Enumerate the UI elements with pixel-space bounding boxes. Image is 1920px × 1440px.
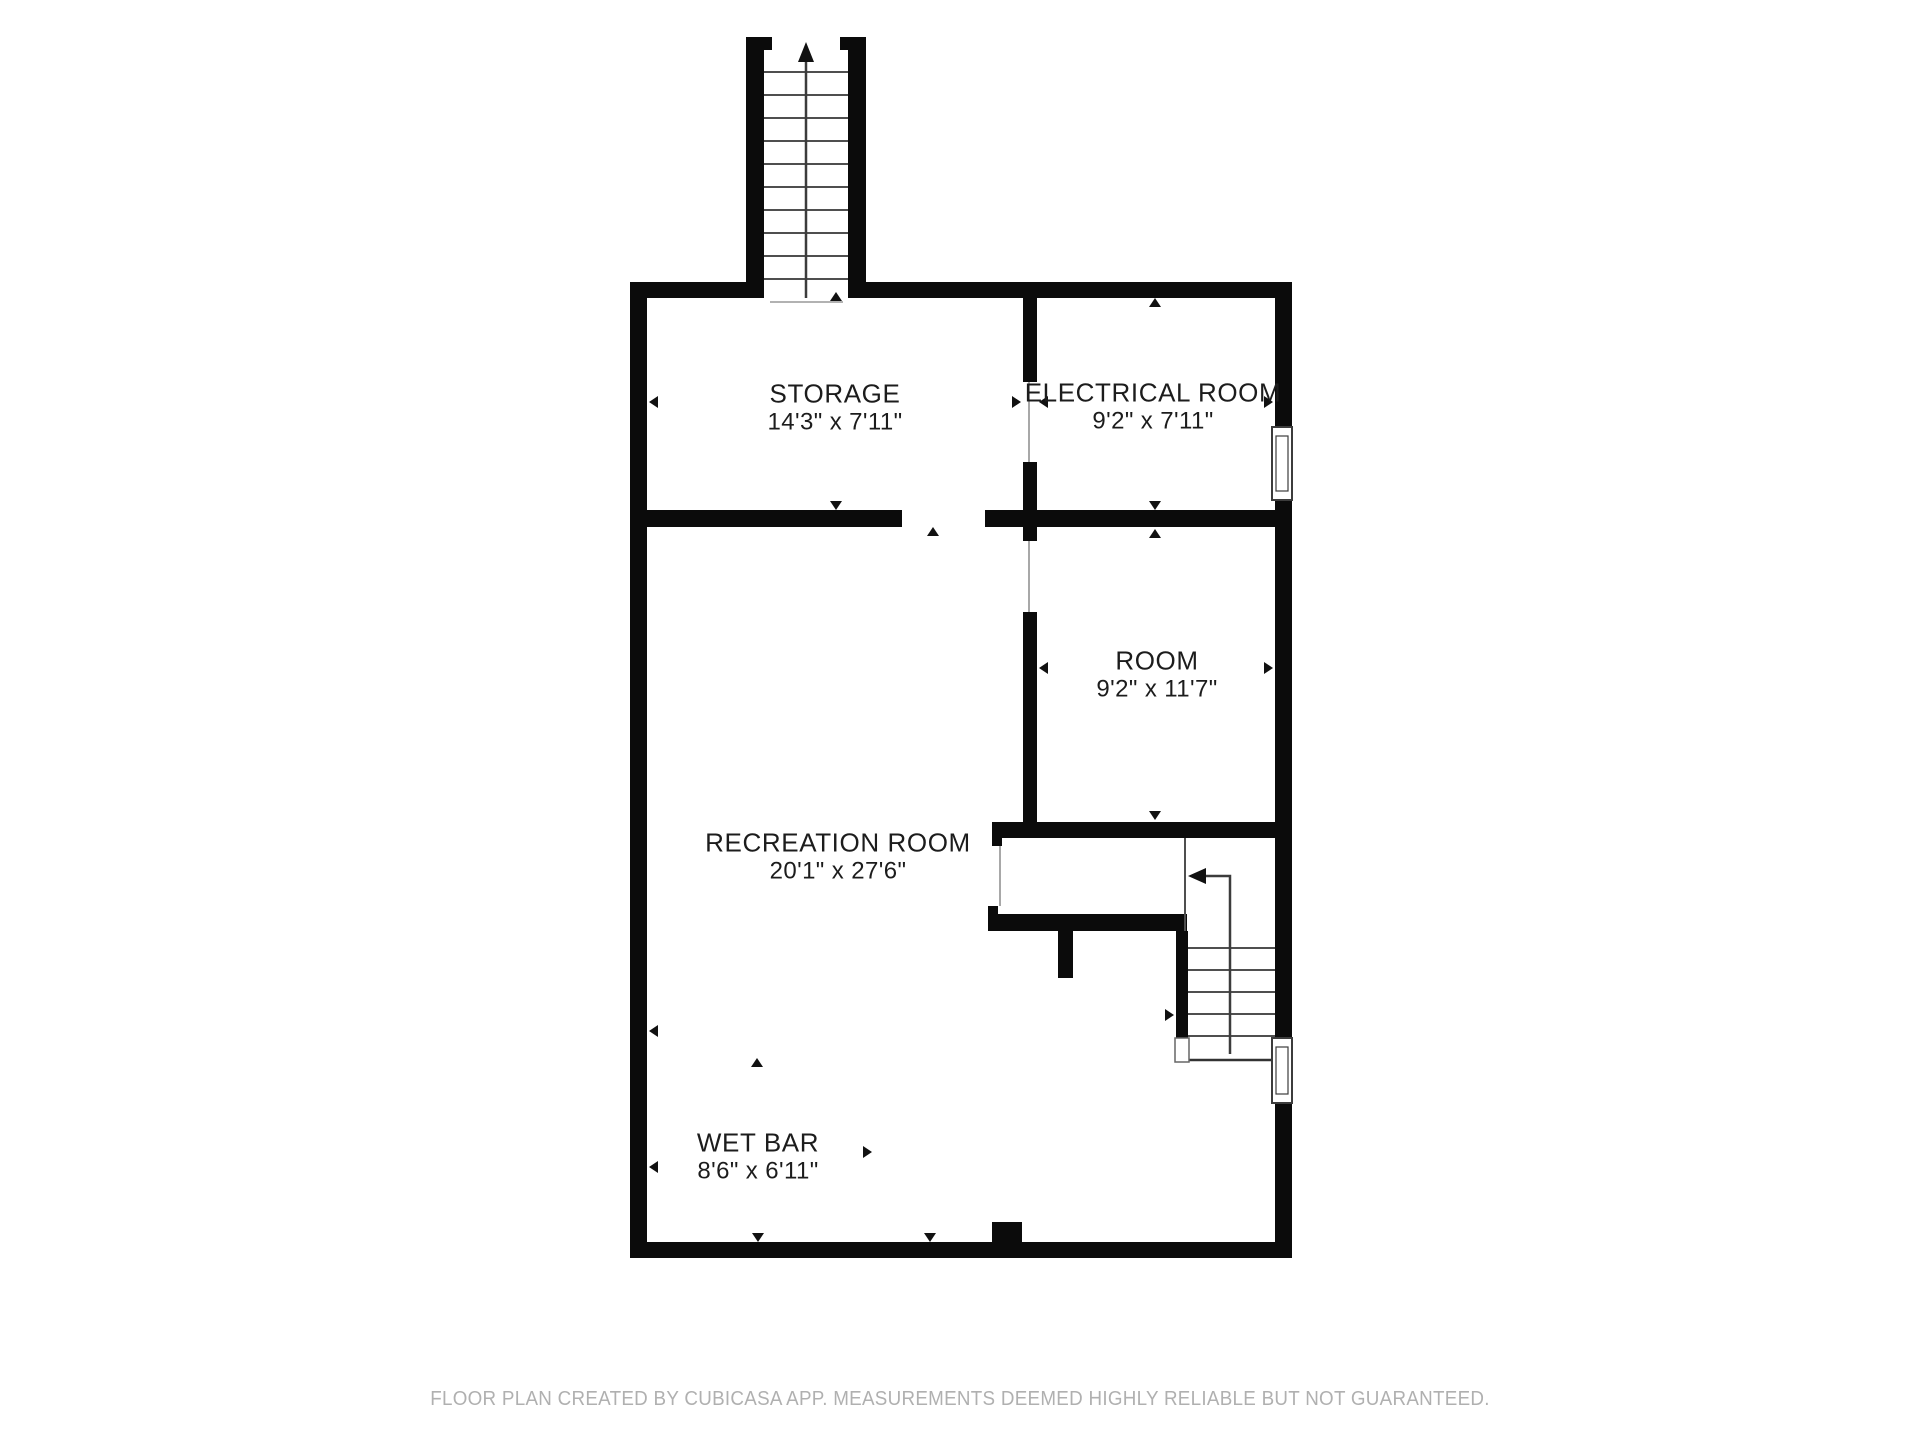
stair-treads-bottom (1188, 948, 1275, 1036)
room-label-storage: STORAGE 14'3" x 7'11" (767, 380, 902, 437)
dimension-arrow-icon (1039, 662, 1048, 674)
room-dimensions: 20'1" x 27'6" (705, 858, 971, 886)
dimension-arrow-icon (649, 1025, 658, 1037)
left-wall (630, 282, 647, 1258)
room-bottom-wall-lip (992, 838, 1002, 846)
divider-storage-electrical-upper (1023, 298, 1037, 382)
divider-storage-electrical-lower (1023, 462, 1037, 510)
floor-plan-drawing (0, 0, 1920, 1440)
stairwell-right-cap (840, 37, 848, 50)
mid-wall-right (985, 510, 1275, 527)
room-label-electrical-room: ELECTRICAL ROOM 9'2" x 7'11" (1025, 379, 1282, 436)
dimension-arrow-icon (649, 1161, 658, 1173)
bottom-wall (630, 1242, 1292, 1258)
dimension-arrow-icon (830, 292, 842, 301)
dimension-arrow-icon (927, 527, 939, 536)
right-wall-middle (1275, 500, 1292, 1038)
floor-plan-page: STORAGE 14'3" x 7'11" ELECTRICAL ROOM 9'… (0, 0, 1920, 1440)
top-wall-right (848, 282, 1292, 298)
window-icon (1272, 1038, 1292, 1103)
divider-room-stub (1023, 527, 1037, 541)
dimension-arrow-icon (1149, 811, 1161, 820)
landing-bottom-wall (988, 914, 1187, 931)
dimension-arrow-icon (1149, 529, 1161, 538)
room-dimensions: 9'2" x 11'7" (1096, 676, 1217, 704)
stair-left-wall-bottom (1176, 931, 1188, 1038)
room-dimensions: 9'2" x 7'11" (1025, 408, 1282, 436)
stairs-up-arrow-icon (798, 42, 814, 298)
stairs-up-arrow-icon (1188, 868, 1230, 1054)
top-wall-left (630, 282, 764, 298)
room-name: ROOM (1096, 647, 1217, 676)
right-wall-lower (1275, 1103, 1292, 1258)
room-bottom-wall (992, 822, 1275, 838)
room-name: ELECTRICAL ROOM (1025, 379, 1282, 408)
room-name: STORAGE (767, 380, 902, 409)
mid-wall-left (647, 510, 902, 527)
room-dimensions: 14'3" x 7'11" (767, 409, 902, 437)
room-label-wet-bar: WET BAR 8'6" x 6'11" (697, 1129, 819, 1186)
room-name: WET BAR (697, 1129, 819, 1158)
dimension-arrow-icon (649, 396, 658, 408)
room-dimensions: 8'6" x 6'11" (697, 1158, 819, 1186)
dimension-arrow-icon (1264, 662, 1273, 674)
footer-disclaimer: FLOOR PLAN CREATED BY CUBICASA APP. MEAS… (430, 1388, 1490, 1411)
landing-bottom-wall-lip (988, 906, 998, 914)
room-label-room: ROOM 9'2" x 11'7" (1096, 647, 1217, 704)
dimension-arrow-icon (1149, 298, 1161, 307)
stairs-bottom (1175, 838, 1275, 1062)
chimney-block (992, 1222, 1022, 1242)
stairwell-left-wall (746, 37, 764, 298)
dimension-arrow-icon (1165, 1009, 1174, 1021)
door-opening (1175, 1038, 1189, 1062)
dimension-arrow-icon (924, 1233, 936, 1242)
dimension-arrow-icon (751, 1058, 763, 1067)
dimension-arrow-icon (1149, 501, 1161, 510)
dimension-arrow-icon (1012, 396, 1021, 408)
stub-wall (1058, 931, 1073, 978)
room-name: RECREATION ROOM (705, 829, 971, 858)
divider-recreation-room (1023, 612, 1037, 822)
dimension-arrow-icon (863, 1146, 872, 1158)
dimension-arrow-icon (752, 1233, 764, 1242)
room-label-recreation-room: RECREATION ROOM 20'1" x 27'6" (705, 829, 971, 886)
dimension-arrow-icon (830, 501, 842, 510)
stairwell-right-wall (848, 37, 866, 298)
window-icon (1272, 427, 1292, 500)
stairwell-top (746, 37, 866, 302)
stairwell-left-cap (764, 37, 772, 50)
